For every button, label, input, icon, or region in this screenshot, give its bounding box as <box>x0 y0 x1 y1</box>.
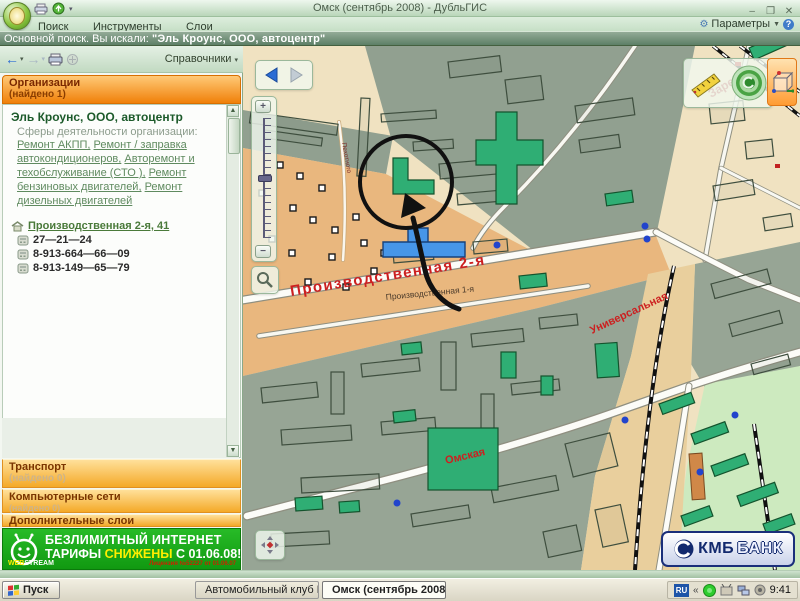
app-orb-button[interactable] <box>3 2 31 30</box>
magnifier-icon <box>256 271 274 289</box>
kmb-bank-icon <box>673 538 695 560</box>
map-viewport[interactable]: Заречье Пехотного Производственная 2-я П… <box>243 46 800 570</box>
taskbar-clock: 9:41 <box>770 584 791 596</box>
panel-networks[interactable]: Компьютерные сети (найдено 0) <box>2 489 241 513</box>
tray-network-icon[interactable] <box>737 585 750 596</box>
kmb-bank-logo[interactable]: КМББАНК <box>661 531 795 567</box>
sidebar: ←▾ →▾ Справочники ▾ Организации (найдено… <box>0 46 243 570</box>
windows-logo-icon <box>7 584 20 596</box>
webstream-logo: WEBSTREAM <box>8 560 54 567</box>
ruler-tool-icon[interactable] <box>688 68 722 98</box>
zoom-in-button[interactable]: + <box>255 100 271 113</box>
map-tools-toolbar <box>683 58 773 108</box>
window-title: Омск (сентябрь 2008) - ДубльГИС <box>0 0 800 16</box>
language-indicator[interactable]: RU <box>674 584 689 597</box>
house-icon <box>11 221 24 232</box>
phone-number[interactable]: 8-913-149—65—79 <box>33 262 130 274</box>
phone-number[interactable]: 27—21—24 <box>33 234 92 246</box>
ad-banner[interactable]: БЕЗЛИМИТНЫЙ ИНТЕРНЕТ ТАРИФЫ СНИЖЕНЫ С 01… <box>2 528 241 570</box>
map-back-icon[interactable] <box>263 67 281 83</box>
route-icon <box>66 53 79 66</box>
phone-row: 8-913-664—66—09 <box>17 248 224 260</box>
cube-3d-icon <box>770 69 794 95</box>
results-footer <box>2 418 239 458</box>
results-scrollbar[interactable]: ▲ ▼ <box>226 105 239 457</box>
tray-tv-icon[interactable] <box>720 584 733 596</box>
activities-links: Ремонт АКПП, Ремонт / заправка автоконди… <box>11 138 224 208</box>
group-title: Организации <box>9 77 234 89</box>
forward-button[interactable]: →▾ <box>27 51 46 67</box>
group-count: (найдено 1) <box>9 89 234 100</box>
panel-transport[interactable]: Транспорт (найдено 0) <box>2 459 241 488</box>
back-button[interactable]: ←▾ <box>5 51 24 67</box>
scroll-down-icon[interactable]: ▼ <box>227 445 239 457</box>
start-button[interactable]: Пуск <box>2 581 60 599</box>
dublgis-logo-icon <box>9 7 25 25</box>
view-3d-button[interactable] <box>767 58 797 106</box>
title-bar: Омск (сентябрь 2008) - ДубльГИС <box>0 0 800 17</box>
tray-volume-icon[interactable] <box>754 584 766 596</box>
address-row: Производственная 2-я, 41 <box>11 220 224 232</box>
tray-chevron-icon[interactable]: « <box>693 585 699 596</box>
system-tray: RU « 9:41 <box>667 581 798 599</box>
search-results: Эль Кроунс, ООО, автоцентр Сферы деятель… <box>2 104 241 458</box>
activities-label: Сферы деятельности организации: <box>11 126 224 138</box>
directories-dropdown[interactable]: Справочники ▾ <box>165 53 238 65</box>
zoom-out-button[interactable]: − <box>255 245 271 258</box>
phone-icon <box>17 263 29 274</box>
org-name: Эль Кроунс, ООО, автоцентр <box>11 110 224 124</box>
phone-row: 27—21—24 <box>17 234 224 246</box>
chevron-down-icon: ▼ <box>773 21 780 28</box>
organizations-panel-header[interactable]: Организации (найдено 1) <box>2 75 241 104</box>
zoom-control: + − <box>251 96 277 262</box>
zoom-slider-handle[interactable] <box>258 175 272 182</box>
map-building-orange <box>689 453 705 500</box>
search-status-bar: Основной поиск. Вы искали: "Эль Кроунс, … <box>0 31 800 46</box>
taskbar-task-autoclub[interactable]: Автомобильный клуб П... <box>195 581 319 599</box>
taskbar: Пуск Автомобильный клуб П... Омск (сентя… <box>0 578 800 601</box>
spiral-tool-icon[interactable] <box>730 64 768 102</box>
address-link[interactable]: Производственная 2-я, 41 <box>28 220 169 232</box>
banner-line2: ТАРИФЫ СНИЖЕНЫ С 01.06.08! <box>45 547 241 561</box>
map-history-nav <box>255 60 313 90</box>
print-results-icon[interactable] <box>48 53 63 66</box>
search-status-text: Основной поиск. Вы искали: <box>4 33 149 45</box>
phone-row: 8-913-149—65—79 <box>17 262 224 274</box>
panel-extra-layers[interactable]: Дополнительные слои <box>2 514 241 527</box>
menu-bar: Поиск Инструменты Слои ⚙ Параметры ▼ ? <box>0 17 800 31</box>
help-icon[interactable]: ? <box>783 19 794 30</box>
qat-customize-icon[interactable]: ▾ <box>69 5 73 13</box>
pan-arrows-icon <box>260 535 280 555</box>
phone-icon <box>17 235 29 246</box>
scroll-thumb[interactable] <box>228 118 240 154</box>
params-menu[interactable]: Параметры <box>711 18 770 30</box>
pan-tool-button[interactable] <box>255 530 285 560</box>
desktop: Омск (сентябрь 2008) - ДубльГИС – ❐ ✕ По… <box>0 0 800 600</box>
phone-number[interactable]: 8-913-664—66—09 <box>33 248 130 260</box>
banner-license: Лицензия №52227 от 01.06.07 <box>149 561 236 567</box>
map-canvas[interactable]: Заречье Пехотного Производственная 2-я П… <box>243 46 800 570</box>
phone-icon <box>17 249 29 260</box>
export-icon[interactable] <box>52 2 65 15</box>
banner-line1: БЕЗЛИМИТНЫЙ ИНТЕРНЕТ <box>45 533 241 547</box>
search-query: "Эль Кроунс, ООО, автоцентр" <box>152 33 326 45</box>
map-forward-icon[interactable] <box>287 67 305 83</box>
print-icon[interactable] <box>34 3 48 15</box>
taskbar-task-dublgis[interactable]: Омск (сентябрь 2008... <box>322 581 446 599</box>
activity-link[interactable]: Ремонт АКПП, <box>17 139 90 151</box>
sidebar-toolbar: ←▾ →▾ Справочники ▾ <box>0 46 243 73</box>
magnifier-button[interactable] <box>251 266 279 294</box>
tray-green-icon[interactable] <box>703 584 716 597</box>
gear-icon: ⚙ <box>699 19 708 30</box>
scroll-up-icon[interactable]: ▲ <box>227 105 239 117</box>
quick-access-toolbar: ▾ <box>34 2 73 15</box>
